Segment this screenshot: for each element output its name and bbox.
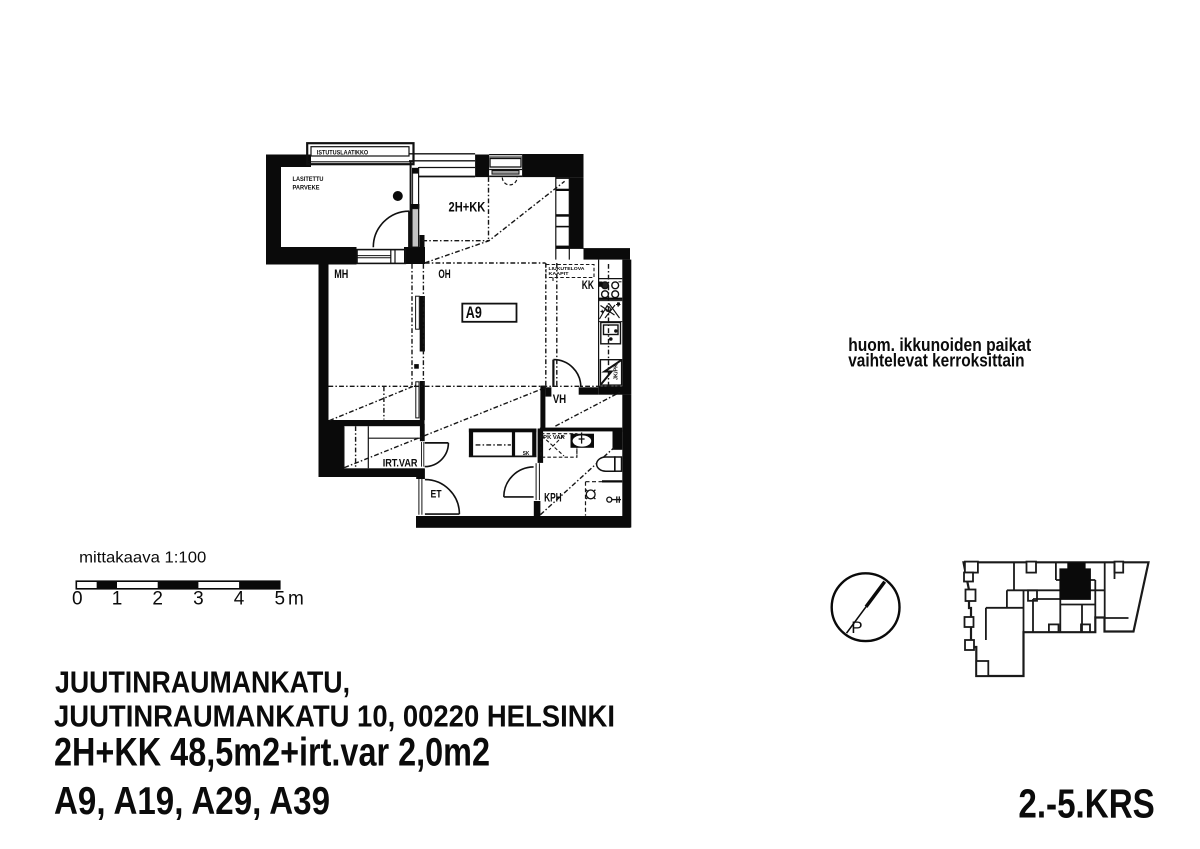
svg-text:IRT.VAR: IRT.VAR xyxy=(383,457,418,469)
svg-text:P: P xyxy=(851,618,862,637)
svg-text:2H+KK 48,5m2+irt.var 2,0m2: 2H+KK 48,5m2+irt.var 2,0m2 xyxy=(54,731,490,775)
svg-text:MH: MH xyxy=(334,269,348,281)
svg-text:m: m xyxy=(288,589,304,610)
svg-text:SK: SK xyxy=(523,451,530,457)
svg-text:VH: VH xyxy=(553,394,567,406)
svg-text:ISTUTUSLAATIKKO: ISTUTUSLAATIKKO xyxy=(317,149,369,156)
svg-text:5: 5 xyxy=(275,589,286,610)
svg-text:OH: OH xyxy=(438,269,450,281)
svg-text:mittakaava 1:100: mittakaava 1:100 xyxy=(79,550,206,567)
svg-text:JUUTINRAUMANKATU 10, 00220 HEL: JUUTINRAUMANKATU 10, 00220 HELSINKI xyxy=(54,699,615,734)
svg-text:JUUTINRAUMANKATU,: JUUTINRAUMANKATU, xyxy=(55,665,350,700)
svg-text:0: 0 xyxy=(72,589,83,610)
svg-text:3: 3 xyxy=(193,589,204,610)
svg-text:2H+KK: 2H+KK xyxy=(449,200,486,215)
svg-text:KAAPIT: KAAPIT xyxy=(549,271,570,276)
svg-text:PK VAR: PK VAR xyxy=(543,435,565,441)
svg-text:2: 2 xyxy=(152,589,163,610)
svg-text:ET: ET xyxy=(431,489,442,501)
svg-text:KPH: KPH xyxy=(544,493,562,505)
svg-text:LASITETTU: LASITETTU xyxy=(293,176,324,183)
svg-text:PARVEKE: PARVEKE xyxy=(293,185,320,192)
svg-text:JK/PK: JK/PK xyxy=(614,364,620,380)
svg-text:2.-5.KRS: 2.-5.KRS xyxy=(1018,781,1154,827)
svg-text:KK: KK xyxy=(582,280,595,292)
svg-text:4: 4 xyxy=(234,589,245,610)
svg-text:vaihtelevat kerroksittain: vaihtelevat kerroksittain xyxy=(848,350,1024,371)
svg-text:A9: A9 xyxy=(466,303,482,322)
svg-text:1: 1 xyxy=(112,589,123,610)
svg-text:A9, A19, A29, A39: A9, A19, A29, A39 xyxy=(54,780,330,823)
